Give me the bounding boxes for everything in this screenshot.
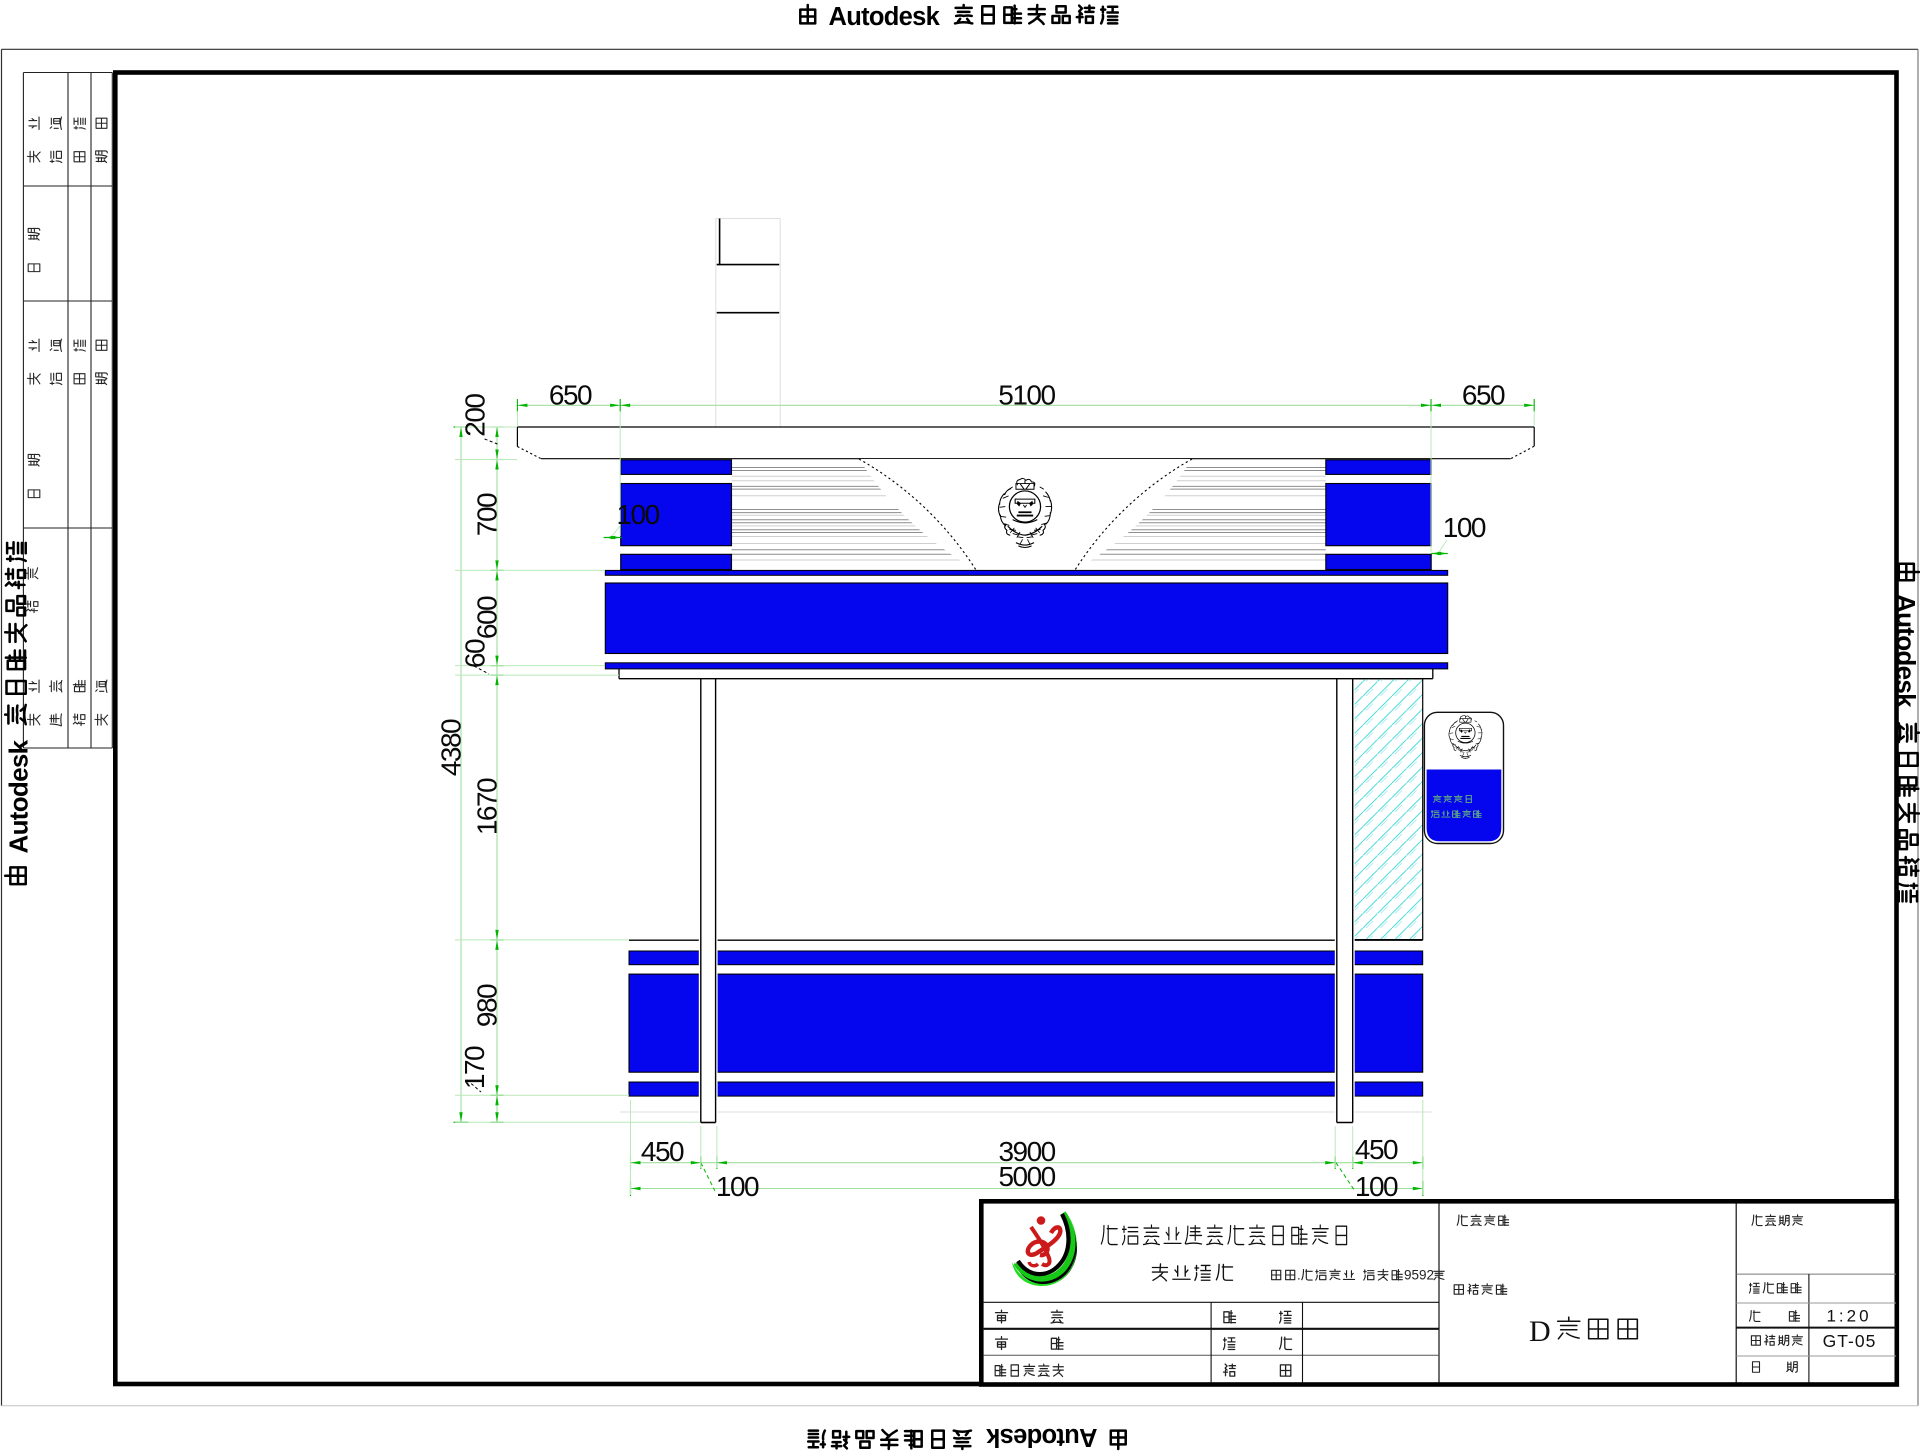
svg-text:Autodesk: Autodesk: [985, 1423, 1097, 1451]
svg-text:100: 100: [1355, 1171, 1398, 1202]
svg-text:9592: 9592: [1404, 1268, 1434, 1283]
svg-text:100: 100: [616, 499, 659, 530]
svg-text:450: 450: [1355, 1134, 1398, 1165]
svg-text:Autodesk: Autodesk: [829, 3, 941, 31]
svg-text:100: 100: [1443, 512, 1486, 543]
svg-text:Autodesk: Autodesk: [1891, 594, 1920, 708]
svg-text:.: .: [1297, 1268, 1301, 1283]
svg-text:600: 600: [472, 596, 503, 639]
svg-text:60: 60: [460, 639, 491, 668]
svg-text:GT-05: GT-05: [1823, 1331, 1877, 1351]
svg-text:4380: 4380: [436, 719, 467, 776]
svg-text:D: D: [1529, 1315, 1551, 1348]
svg-text:1670: 1670: [472, 778, 503, 835]
svg-text:5000: 5000: [998, 1161, 1055, 1192]
svg-text:650: 650: [1462, 380, 1505, 411]
svg-text:170: 170: [459, 1046, 490, 1089]
svg-text:Autodesk: Autodesk: [4, 739, 34, 853]
svg-text:980: 980: [472, 984, 503, 1027]
svg-text:1:20: 1:20: [1826, 1307, 1871, 1326]
svg-text:650: 650: [549, 380, 592, 411]
svg-text:5100: 5100: [998, 380, 1055, 411]
svg-text:450: 450: [641, 1136, 684, 1167]
svg-text:100: 100: [716, 1171, 759, 1202]
svg-text:200: 200: [460, 394, 491, 437]
svg-text:700: 700: [472, 493, 503, 536]
